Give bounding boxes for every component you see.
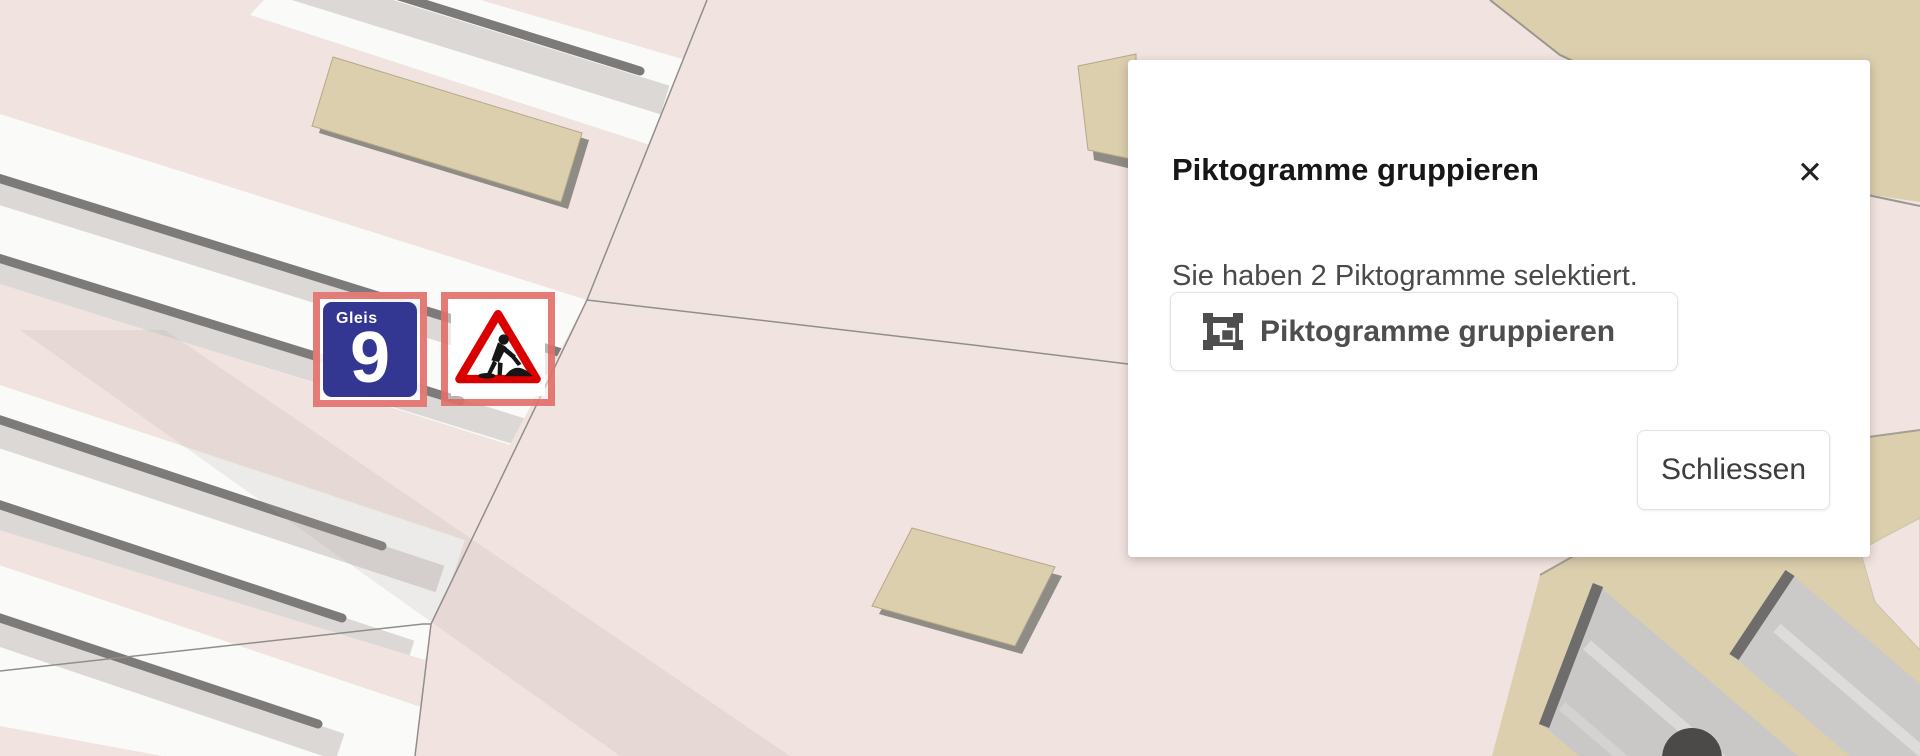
group-button-label: Piktogramme gruppieren <box>1260 315 1615 349</box>
object-group-icon <box>1203 313 1243 350</box>
pictogram-construction[interactable] <box>441 292 555 406</box>
construction-worker-icon <box>451 302 545 396</box>
track-number: 9 <box>323 320 417 396</box>
track-number-sign: Gleis 9 <box>323 302 417 397</box>
pictogram-gleis-9[interactable]: Gleis 9 <box>313 292 427 407</box>
group-pictograms-dialog: Piktogramme gruppieren ✕ Sie haben 2 Pik… <box>1128 60 1870 557</box>
close-icon[interactable]: ✕ <box>1790 154 1830 194</box>
group-pictograms-button[interactable]: Piktogramme gruppieren <box>1170 292 1678 371</box>
selection-count-message: Sie haben 2 Piktogramme selektiert. <box>1172 260 1638 293</box>
schliessen-button[interactable]: Schliessen <box>1637 430 1830 510</box>
schliessen-button-label: Schliessen <box>1661 453 1806 487</box>
map-viewport[interactable]: Gleis 9 Piktogramme gruppiere <box>0 0 1920 756</box>
dialog-title: Piktogramme gruppieren <box>1172 152 1539 188</box>
construction-warning-sign <box>451 302 545 396</box>
